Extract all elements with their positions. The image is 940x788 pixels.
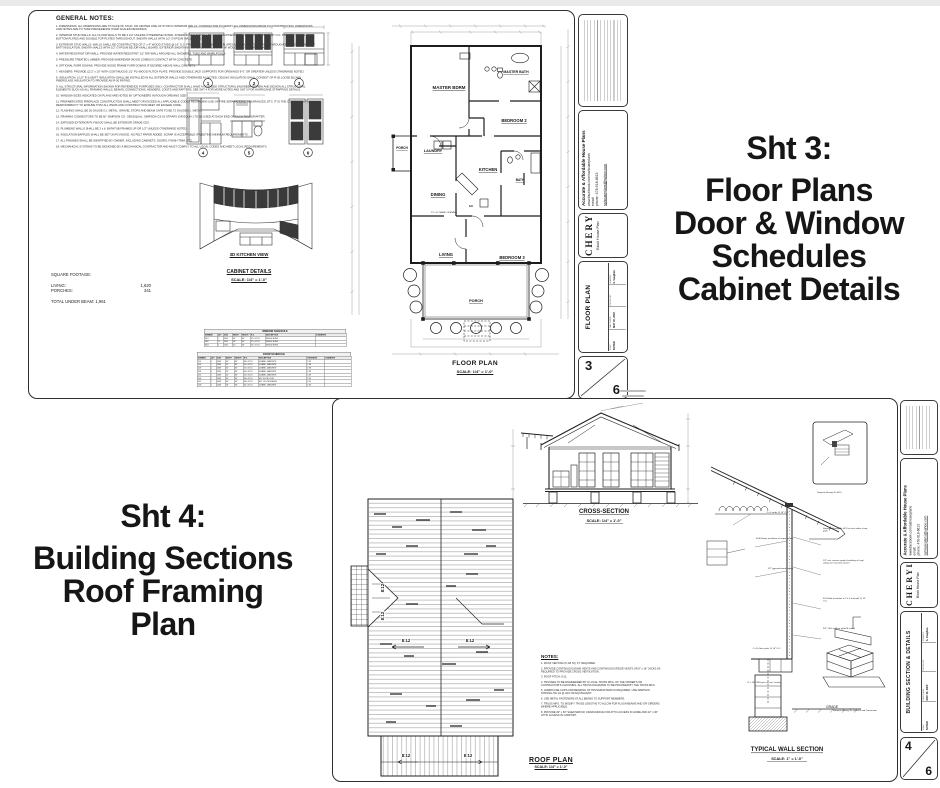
roof-plan-title: ROOF PLAN <box>501 757 601 764</box>
company-name: Accurate & Affordable House Plans <box>903 460 908 556</box>
sheet4-number-box: 4 6 <box>900 737 938 780</box>
elevation-number: 1 <box>207 81 210 86</box>
elevation-number: 4 <box>202 150 205 155</box>
sheet4-page: CROSS-SECTION SCALE: 1/4" = 1'-0" <box>332 398 898 782</box>
roof-note-item: 2. PROVIDE CONTINUOUS EAVE VENTS AND CON… <box>541 667 661 673</box>
sheet-title: FLOOR PLAN <box>580 263 592 351</box>
roof-slope-label: 8:12 <box>402 753 411 758</box>
cabinet-details-scale: SCALE: 1/4" = 1'-0" <box>189 277 309 282</box>
sheet-number: 3 <box>585 358 592 373</box>
titleblock-company: Accurate & Affordable House Plans www.fa… <box>900 458 938 559</box>
cabinet-details-title: CABINET DETAILS <box>189 269 309 275</box>
drawn-label: DRAWN BY: <box>923 614 925 641</box>
sheet3-headline-intro: Sht 3: <box>642 132 936 165</box>
sqft-label: PORCHES: <box>51 288 73 293</box>
wall-callout: R-13 Batt Insulation in 2 x 4 stud wall … <box>823 597 869 602</box>
binder-mark <box>620 390 646 392</box>
floor-plan-label: FLOOR PLAN SCALE: 1/4" = 1'-0" <box>415 360 535 374</box>
drawn-value: S. Vaughan <box>613 264 616 284</box>
company-email: sahouseplans@yahoo.com <box>924 460 928 556</box>
sheet4-headline-intro: Sht 4: <box>10 500 316 533</box>
roof-note-item: 6. USE METAL FASTENERS AT ALL BEAMS TO S… <box>541 697 661 700</box>
titleblock-disclaimer <box>900 400 938 455</box>
door-schedule: DOOR SCHEDULE NUMBERQTYSIZEWIDTHHEIGHTR.… <box>197 352 351 422</box>
inset-detail-caption: Simpson Strong-Tie H2.5 <box>817 491 857 494</box>
room-label-living: LIVING <box>439 252 453 257</box>
room-label-master: MASTER BDRM <box>433 85 466 90</box>
window-schedule-row: W031203024"36"25 x 37 1/2SINGLE HUNG <box>204 343 346 346</box>
kitchen-3d-drawing <box>192 169 320 253</box>
wall-callout: 1/2" gypsum board ceiling <box>751 567 793 570</box>
sheet4-titleblock: Accurate & Affordable House Plans www.fa… <box>900 398 938 782</box>
square-footage-heading: SQUARE FOOTAGE: <box>51 272 151 277</box>
wall-callout: 1/2" min. exterior grade sheathing w/ vi… <box>823 559 869 564</box>
room-label-kitchen: KITCHEN <box>479 167 498 172</box>
sheet-title: BUILDING SECTION & DETAILS <box>902 613 912 731</box>
cross-section-title: CROSS-SECTION <box>579 509 629 515</box>
disclaimer-text-lines <box>906 406 932 449</box>
company-phone: phone: 478-918-6613 <box>596 112 600 206</box>
client-name: CHERYL <box>905 564 914 606</box>
checked-label: CHECKED BY: <box>923 644 925 671</box>
roof-note-item: 8. PROVIDE 30" x 60" SHEATHROCK CRAWLSPA… <box>541 711 661 717</box>
room-label-porch-side: PORCH <box>396 146 408 150</box>
sheet3-headline-line: Cabinet Details <box>642 273 936 306</box>
ac-label: A/C <box>469 204 474 208</box>
roof-slope-label: 8:12 <box>402 638 411 643</box>
roof-slope-label: 8:12 <box>380 583 385 592</box>
titleblock-client: CHERYL Block House Plan <box>900 562 938 608</box>
floor-plan-title: FLOOR PLAN <box>415 360 535 367</box>
scale-label: SCALE: <box>610 330 612 350</box>
roof-note-item: 4. TRUSSES TO BE ENGINEERED BY A LOCAL T… <box>541 681 661 687</box>
room-label-bath: BATH <box>516 178 525 182</box>
drawn-value: S. Vaughan <box>926 614 929 641</box>
wall-section-title: TYPICAL WALL SECTION <box>751 747 823 753</box>
date-value: MAY 26, 2006 <box>613 308 616 328</box>
roof-slope-label: 8:12 <box>464 753 473 758</box>
date-label: DATE DRAWN: <box>610 308 612 328</box>
sheet4-headline-line: Roof Framing <box>10 575 316 608</box>
room-label-laundry: LAUNDRY <box>424 149 443 153</box>
roof-note-item: 3. ROOF PITCH: 8:12. <box>541 676 661 679</box>
elevation-number: 2 <box>253 81 256 86</box>
room-label-dining: DINING <box>431 192 446 197</box>
square-footage-block: SQUARE FOOTAGE: LIVING:1,620 PORCHES:341… <box>51 272 151 304</box>
sheet3-headline-line: Schedules <box>642 240 936 273</box>
sheet-total: 6 <box>613 382 620 397</box>
wall-callout: R-30 blown insulation w/ vapor barrier <box>751 537 793 540</box>
wall-callout: 8" x 16" CMU pier on conc. footing <box>739 681 781 684</box>
cross-section-scale: SCALE: 1/4" = 1'-0" <box>587 519 622 523</box>
roof-plan-label: ROOF PLAN SCALE: 1/4" = 1'-0" <box>501 757 601 769</box>
wall-callout: 3/4" T&G subfloor glued & nailed <box>823 627 869 630</box>
roof-note-item: 1. ROOF VENTING IS 1/8 SQ. FT. REQUIRED. <box>541 662 661 665</box>
top-gray-bar <box>0 0 940 6</box>
cross-section-drawing: CROSS-SECTION SCALE: 1/4" = 1'-0" <box>483 399 723 527</box>
sheet4-headline: Sht 4: Building Sections Roof Framing Pl… <box>10 500 316 641</box>
wall-callout: 2 x 10 floor joists @ 16" O.C. <box>739 647 781 650</box>
date-value: MAY 26, 2006 <box>926 673 929 700</box>
wall-callout: Simpson Strong-Tie H2.5 at each rafter t… <box>823 527 869 532</box>
roof-slope-label: 8:12 <box>466 638 475 643</box>
sheet3-titleblock: Accurate & Affordable House Plans www.fa… <box>578 10 628 399</box>
roof-note-item: 5. HURRICANE CLIPS AND BEARING OF TRUSS/… <box>541 689 661 695</box>
titleblock-client: CHERYL Block House Plan <box>578 213 628 258</box>
room-label-porch-front: PORCH <box>469 299 483 303</box>
titleblock-disclaimer <box>578 14 628 107</box>
sqft-total-label: TOTAL UNDER BEAM: <box>51 299 94 304</box>
titleblock-sheet-title: FLOOR PLAN SCALE:NOTED DATE DRAWN:MAY 26… <box>578 261 628 353</box>
cased-opening-label: 12' x 8' CASED OPENING <box>431 211 457 214</box>
company-name: Accurate & Affordable House Plans <box>582 112 587 206</box>
sheet3-headline-line: Door & Window <box>642 207 936 240</box>
door-schedule-row: D081246828"80"30 x 82 1/24-PANEL, MASONI… <box>197 383 351 386</box>
sheet3-headline: Sht 3: Floor Plans Door & Window Schedul… <box>642 132 936 306</box>
titleblock-sheet-title: BUILDING SECTION & DETAILS SCALE:NOTED D… <box>900 611 938 733</box>
sheet3-headline-line: Floor Plans <box>642 174 936 207</box>
sheet4-headline-line: Plan <box>10 608 316 641</box>
sheet3-page: GENERAL NOTES: 1. DIMENSIONS: ALL DIMENS… <box>28 10 575 399</box>
wall-callout: 2 x 4 studs @ 16" O.C. <box>747 511 789 514</box>
company-email: sahouseplans@yahoo.com <box>603 112 607 206</box>
floor-plan-drawing: MASTER BDRM MASTER BATH BEDROOM 2 PORCH … <box>344 23 576 357</box>
stage: GENERAL NOTES: 1. DIMENSIONS: ALL DIMENS… <box>0 0 940 788</box>
scale-label: SCALE: <box>923 703 925 730</box>
binder-mark <box>622 395 644 397</box>
sqft-total-value: 1,961 <box>95 299 105 304</box>
general-notes-heading: GENERAL NOTES: <box>56 15 114 22</box>
company-phone: phone: 478-918-6613 <box>917 460 921 556</box>
sheet-number: 4 <box>905 739 912 753</box>
checked-label: CHECKED BY: <box>610 286 612 306</box>
scale-value: NOTED <box>926 703 929 730</box>
disclaimer-text-lines <box>584 20 622 101</box>
wall-section-scale: SCALE: 1" = 1'-0" <box>771 757 803 761</box>
sheet4-headline-line: Building Sections <box>10 542 316 575</box>
kitchen-view-label: 3D KITCHEN VIEW <box>189 252 309 257</box>
sheet3-number-box: 3 6 <box>578 356 628 399</box>
masonry-detail-caption: Simpson Strong-Tie Lateral Load Connecti… <box>833 709 877 712</box>
floor-plan-scale: SCALE: 1/4" = 1'-0" <box>415 369 535 374</box>
plan-name: Block House Plan <box>596 215 600 256</box>
titleblock-fields: SCALE:NOTED DATE DRAWN:MAY 26, 2006 CHEC… <box>921 613 936 731</box>
roof-note-item: 7. TRUSS MFG. TO MODIFY TRUSS LENGTHS TO… <box>541 703 661 709</box>
sqft-value: 341 <box>144 288 151 293</box>
roof-slope-label: 8:12 <box>380 611 385 620</box>
room-label-bed3: BEDROOM 3 <box>499 255 525 260</box>
client-name: CHERYL <box>584 215 594 256</box>
scale-value: NOTED <box>613 330 616 350</box>
drawn-label: DRAWN BY: <box>610 264 612 284</box>
titleblock-company: Accurate & Affordable House Plans www.fa… <box>578 110 628 210</box>
roof-notes-heading: NOTES: <box>541 654 665 659</box>
sheet-total: 6 <box>925 764 932 778</box>
date-label: DATE DRAWN: <box>923 673 925 700</box>
cabinet-details-labels: 3D KITCHEN VIEW CABINET DETAILS SCALE: 1… <box>189 252 309 282</box>
roof-plan-scale: SCALE: 1/4" = 1'-0" <box>501 765 601 769</box>
titleblock-fields: SCALE:NOTED DATE DRAWN:MAY 26, 2006 CHEC… <box>608 263 626 351</box>
room-label-master-bath: MASTER BATH <box>503 70 529 74</box>
plan-name: Block House Plan <box>916 564 920 606</box>
elevation-number: 3 <box>298 81 301 86</box>
elevation-number: 5 <box>248 150 251 155</box>
elevation-number: 6 <box>307 150 310 155</box>
roof-plan-drawing: 8:12 8:12 8:12 8:12 8:12 8:12 <box>346 494 518 782</box>
cabinet-elevations-drawing: 1 2 3 4 5 6 <box>177 21 331 159</box>
room-label-bed2: BEDROOM 2 <box>501 118 527 123</box>
